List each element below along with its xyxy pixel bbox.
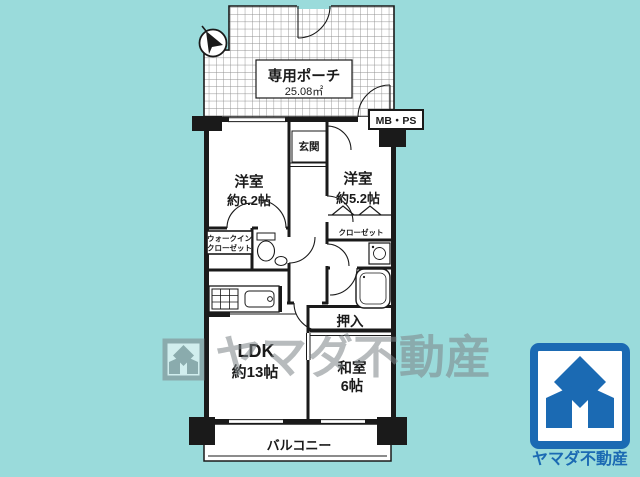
porch-gate-opening <box>297 3 331 9</box>
oshiire-label: 押入 <box>337 313 364 329</box>
company-name: ヤマダ不動産 <box>532 449 628 468</box>
shaft-label: MB・PS <box>376 115 417 127</box>
porch-area-value: 25.08㎡ <box>285 85 324 98</box>
balcony-label: バルコニー <box>267 438 332 453</box>
watermark-logo-icon <box>165 341 202 378</box>
shaft-box: MB・PS <box>369 110 423 129</box>
balcony: バルコニー <box>204 424 391 461</box>
porch-label-box: 専用ポーチ 25.08㎡ <box>256 60 352 98</box>
wic-label-line1: ウォークイン <box>207 233 252 243</box>
walk-in-closet-box: ウォークイン クローゼット <box>207 231 252 254</box>
porch-label: 専用ポーチ <box>268 67 341 85</box>
western-room-1-size: 約6.2帖 <box>227 193 271 208</box>
bathtub <box>356 269 390 308</box>
western-room-2-size: 約5.2帖 <box>336 191 380 206</box>
watermark-text: ヤマダ不動産 <box>215 331 491 383</box>
washer-pan <box>369 243 390 264</box>
floorplan-svg: 専用ポーチ 25.08㎡ バルコニー <box>0 0 640 477</box>
western-room-2-name: 洋室 <box>344 170 373 188</box>
entrance-label: 玄関 <box>299 140 320 153</box>
western-room-1-name: 洋室 <box>235 173 264 191</box>
wic-label-line2: クローゼット <box>207 243 252 253</box>
floorplan-image: 専用ポーチ 25.08㎡ バルコニー <box>0 0 640 477</box>
closet-label: クローゼット <box>339 227 384 237</box>
